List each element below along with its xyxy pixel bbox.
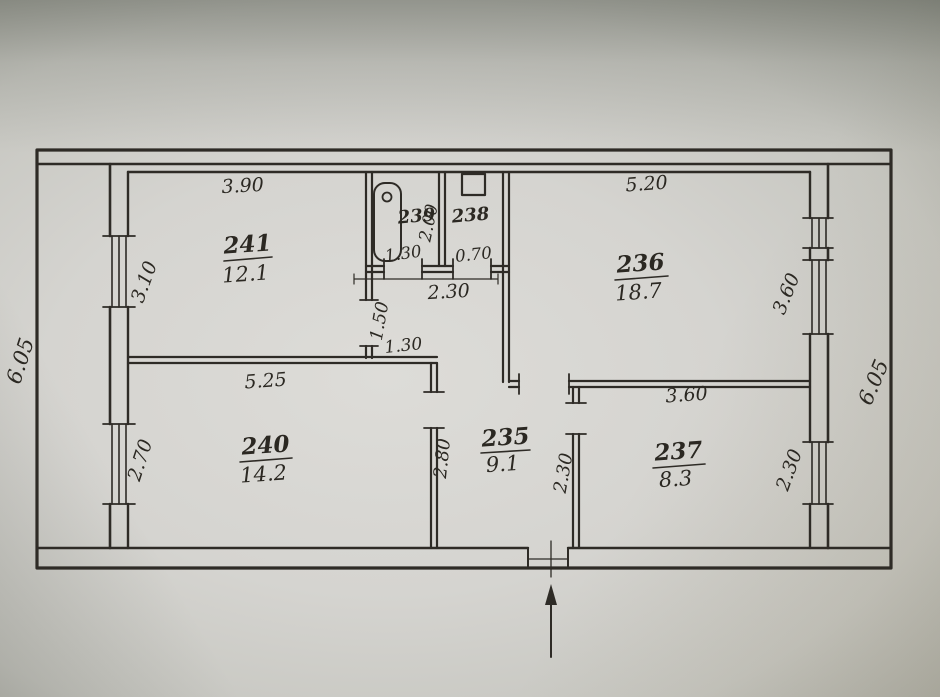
door-237-hall-ticks bbox=[566, 403, 586, 434]
dimension-labels: 3.90 5.20 3.10 2.70 6.05 6.05 3.60 2.30 … bbox=[2, 172, 894, 496]
window-237-icon bbox=[812, 442, 826, 504]
dim-building-left: 6.05 bbox=[2, 335, 39, 387]
dim-240-width: 5.25 bbox=[244, 369, 288, 394]
window-236-icon bbox=[812, 260, 826, 334]
dim-hall-height: 2.80 bbox=[430, 437, 455, 480]
room-236-area: 18.7 bbox=[614, 278, 663, 305]
window-240-icon bbox=[112, 424, 126, 504]
room-237-area: 8.3 bbox=[658, 466, 693, 492]
apartment-exterior-walls bbox=[128, 172, 810, 548]
room-237-number: 237 bbox=[653, 436, 704, 466]
entrance-door bbox=[528, 541, 568, 657]
dim-241-width: 3.90 bbox=[221, 174, 264, 198]
door-240-hall-ticks bbox=[424, 392, 444, 428]
room-241-number: 241 bbox=[222, 229, 273, 259]
wall-236-bottom bbox=[509, 381, 810, 387]
room-241-area: 12.1 bbox=[221, 260, 269, 287]
dim-bath-width: 1.30 bbox=[384, 242, 423, 266]
room-235-number: 235 bbox=[480, 422, 531, 452]
room-236-number: 236 bbox=[615, 248, 666, 278]
wall-bath-corridor bbox=[366, 266, 509, 272]
dim-240-window: 2.70 bbox=[123, 437, 157, 485]
dim-wc-width: 0.70 bbox=[454, 243, 493, 266]
bathtub-drain bbox=[383, 193, 392, 202]
dim-237-width: 3.60 bbox=[665, 383, 709, 408]
dim-corridor-width: 2.30 bbox=[426, 280, 470, 304]
dim-building-right: 6.05 bbox=[853, 356, 893, 408]
floor-plan-photo: 3.90 5.20 3.10 2.70 6.05 6.05 3.60 2.30 … bbox=[0, 0, 940, 697]
floor-plan-drawing: 3.90 5.20 3.10 2.70 6.05 6.05 3.60 2.30 … bbox=[0, 0, 940, 697]
interior-walls bbox=[128, 172, 810, 548]
room-239-number: 239 bbox=[396, 204, 437, 228]
room-235-area: 9.1 bbox=[485, 451, 520, 477]
toilet-icon bbox=[462, 174, 485, 195]
dim-237-window: 2.30 bbox=[771, 446, 806, 494]
corridor-dimension-line bbox=[354, 274, 498, 284]
wall-238-236 bbox=[503, 172, 509, 382]
dim-236-window: 3.60 bbox=[768, 270, 804, 317]
dim-nook-width: 1.30 bbox=[384, 334, 424, 358]
window-241-icon bbox=[112, 236, 126, 307]
balcony-door-236-icon bbox=[812, 218, 826, 248]
door-236-hall-ticks bbox=[519, 374, 569, 394]
entrance-jambs bbox=[528, 548, 568, 568]
room-240-number: 240 bbox=[240, 430, 291, 460]
wall-241-240 bbox=[128, 357, 437, 363]
entrance-threshold bbox=[528, 541, 568, 577]
room-240-area: 14.2 bbox=[239, 460, 287, 487]
dim-236-width: 5.20 bbox=[625, 172, 669, 197]
entrance-arrow-icon bbox=[545, 584, 557, 605]
room-238-number: 238 bbox=[450, 203, 491, 227]
dim-nook-height: 1.50 bbox=[367, 300, 393, 342]
dim-241-window: 3.10 bbox=[127, 258, 162, 305]
